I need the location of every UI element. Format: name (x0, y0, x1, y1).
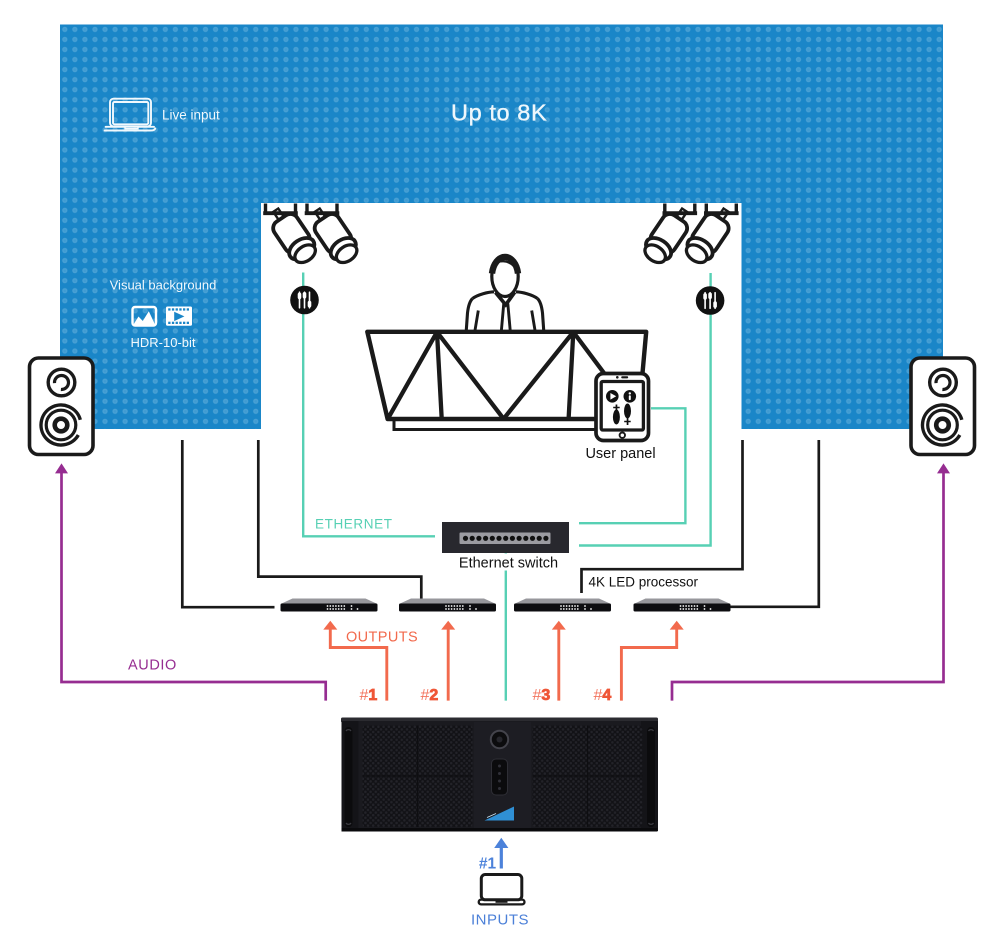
svg-text:#4: #4 (594, 687, 612, 704)
svg-text:#1: #1 (479, 856, 497, 873)
svg-text:Live input: Live input (162, 108, 220, 123)
svg-text:OUTPUTS: OUTPUTS (346, 630, 418, 646)
svg-text:Ethernet switch: Ethernet switch (459, 556, 558, 572)
svg-text:4K LED processor: 4K LED processor (589, 575, 699, 590)
svg-text:Visual background: Visual background (110, 278, 217, 293)
svg-text:#3: #3 (533, 687, 551, 704)
svg-text:#1: #1 (360, 687, 378, 704)
svg-text:INPUTS: INPUTS (471, 912, 529, 929)
svg-text:ETHERNET: ETHERNET (315, 517, 393, 532)
svg-text:AUDIO: AUDIO (128, 658, 177, 674)
svg-text:#2: #2 (421, 687, 439, 704)
svg-text:HDR-10-bit: HDR-10-bit (130, 335, 195, 350)
svg-text:Up to 8K: Up to 8K (451, 100, 547, 126)
svg-text:User panel: User panel (585, 446, 655, 462)
